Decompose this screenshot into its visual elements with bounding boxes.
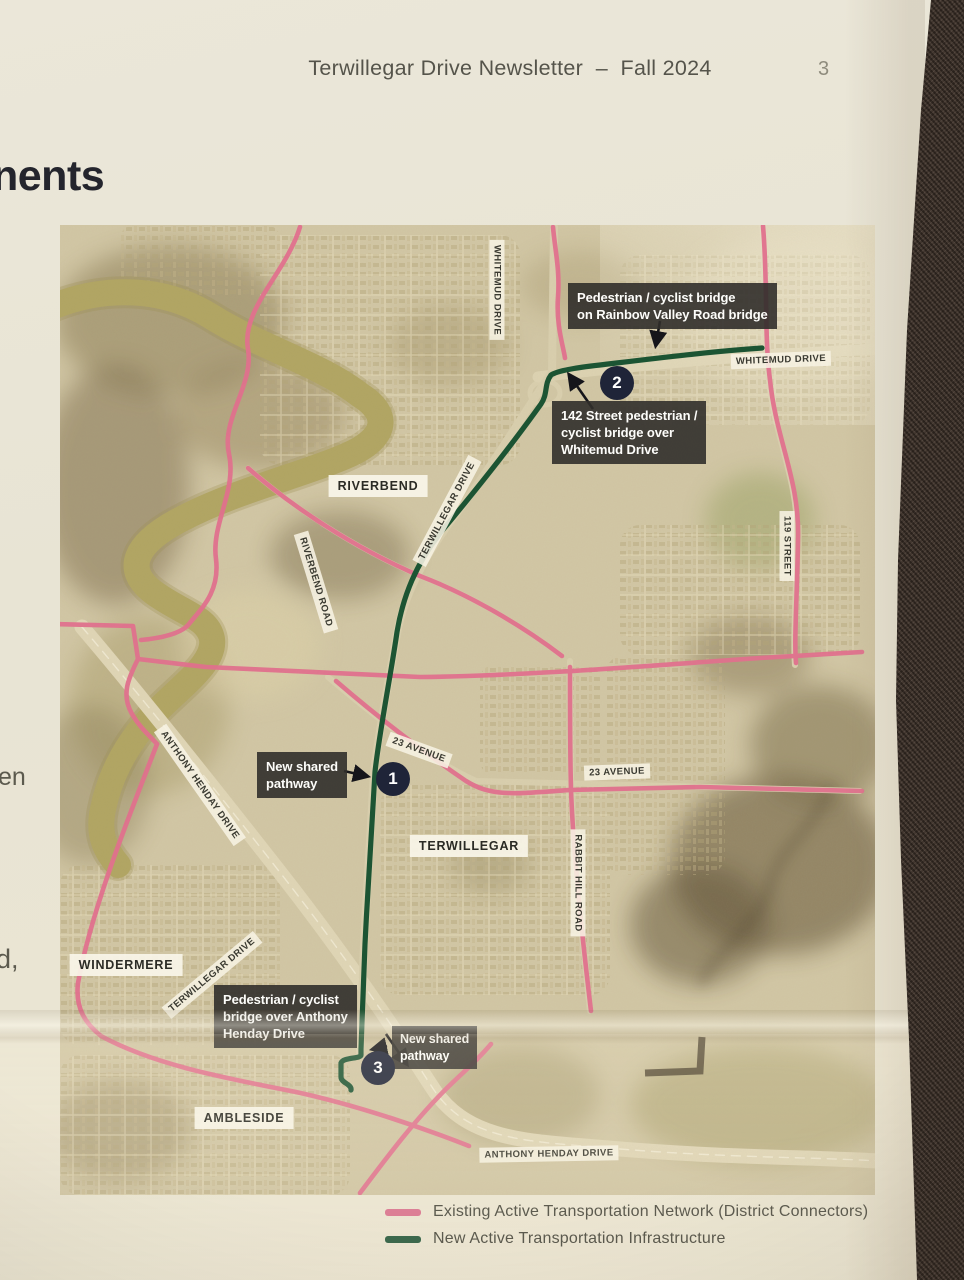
neighborhood-label-terwillegar: TERWILLEGAR — [410, 835, 528, 857]
callout-henday-bridge: Pedestrian / cyclist bridge over Anthony… — [214, 985, 357, 1048]
photo-of-newsletter-page: { "header": { "title": "Terwillegar Driv… — [0, 0, 964, 1280]
road-label-anthony-henday-bottom: ANTHONY HENDAY DRIVE — [479, 1145, 618, 1162]
legend-item-existing: Existing Active Transportation Network (… — [385, 1203, 868, 1221]
callout-rainbow-valley-bridge: Pedestrian / cyclist bridge on Rainbow V… — [568, 283, 777, 329]
page-number: 3 — [818, 58, 829, 81]
map-marker-2: 2 — [600, 366, 634, 400]
newsletter-title: Terwillegar Drive Newsletter — [308, 56, 583, 80]
callout-142-street-bridge: 142 Street pedestrian / cyclist bridge o… — [552, 401, 706, 464]
road-label-23-avenue-east: 23 AVENUE — [584, 763, 650, 780]
neighborhood-label-ambleside: AMBLESIDE — [195, 1107, 294, 1129]
legend-swatch-existing — [385, 1209, 421, 1216]
cropped-section-heading: nents — [0, 152, 104, 201]
legend-item-new: New Active Transportation Infrastructure — [385, 1230, 868, 1248]
newsletter-page: Terwillegar Drive Newsletter – Fall 2024… — [0, 0, 964, 1280]
road-label-119-street: 119 STREET — [780, 511, 795, 581]
page-edge-shadow — [845, 0, 925, 1280]
legend-label-new: New Active Transportation Infrastructure — [433, 1230, 726, 1248]
map-legend: Existing Active Transportation Network (… — [385, 1203, 868, 1257]
road-label-whitemud-drive-north: WHITEMUD DRIVE — [490, 240, 505, 340]
newsletter-issue: Fall 2024 — [621, 56, 712, 80]
callout-new-shared-pathway-3: New shared pathway — [392, 1026, 477, 1069]
legend-swatch-new — [385, 1236, 421, 1243]
aerial-map: WHITEMUD DRIVE WHITEMUD DRIVE TERWILLEGA… — [60, 225, 875, 1195]
header-separator: – — [596, 56, 608, 80]
road-label-rabbit-hill-road: RABBIT HILL ROAD — [571, 829, 586, 936]
neighborhood-label-windermere: WINDERMERE — [70, 954, 183, 976]
map-marker-1: 1 — [376, 762, 410, 796]
legend-label-existing: Existing Active Transportation Network (… — [433, 1203, 868, 1221]
cropped-text-fragment: en — [0, 763, 26, 792]
newsletter-header: Terwillegar Drive Newsletter – Fall 2024 — [250, 56, 770, 81]
callout-new-shared-pathway-1: New shared pathway — [257, 752, 347, 798]
neighborhood-label-riverbend: RIVERBEND — [329, 475, 428, 497]
cropped-text-fragment: d, — [0, 944, 19, 975]
map-marker-3: 3 — [361, 1051, 395, 1085]
